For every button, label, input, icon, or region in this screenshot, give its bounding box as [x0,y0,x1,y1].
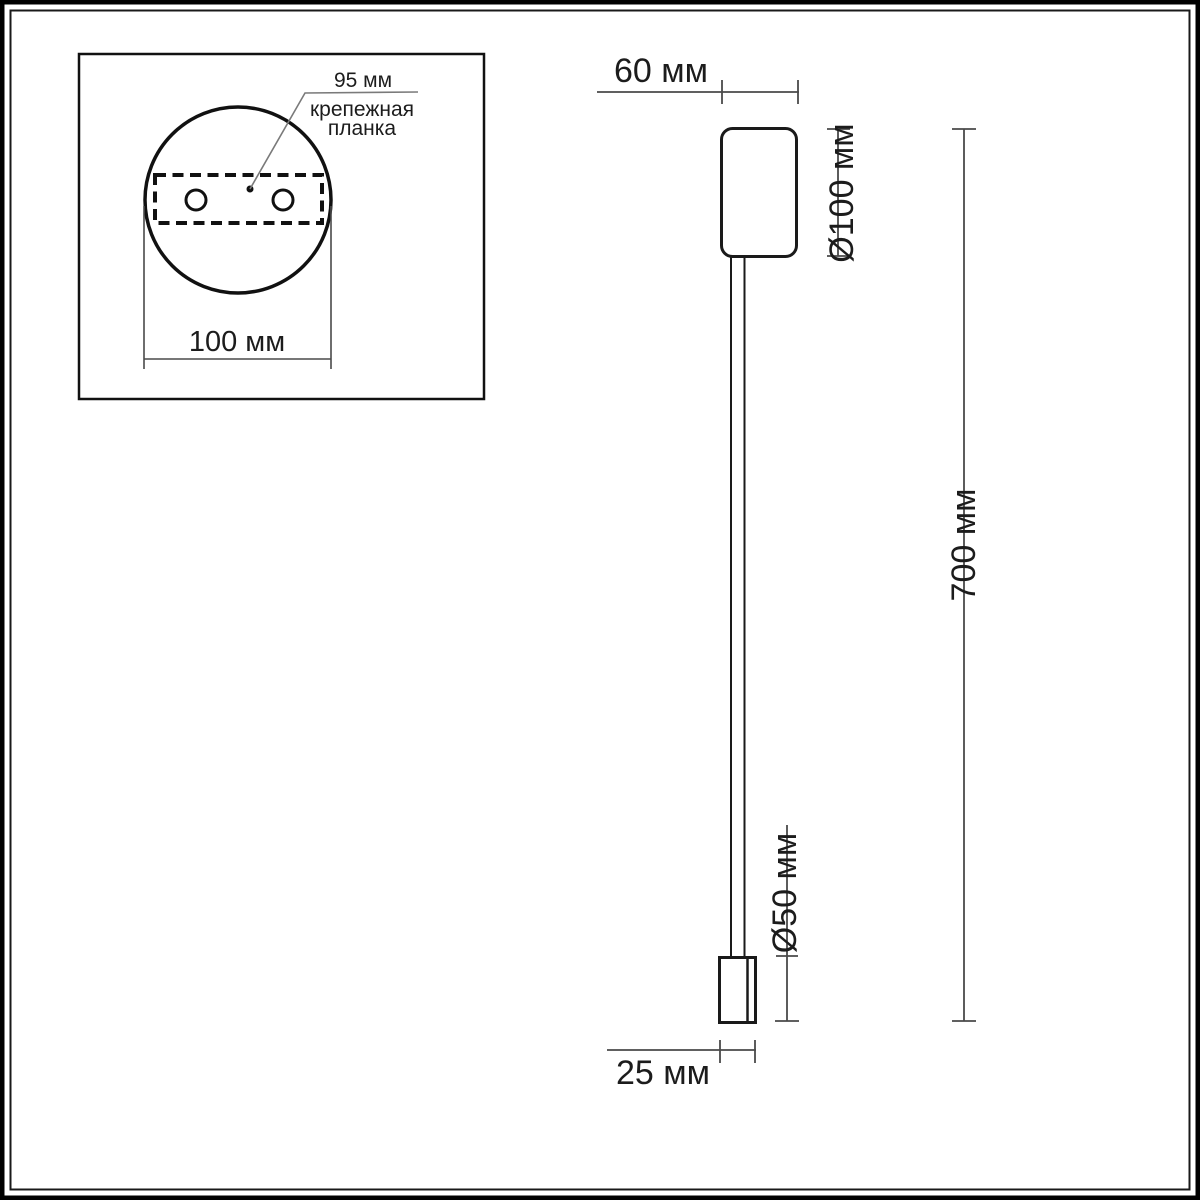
lamp-head-cylinder [720,958,756,1023]
base-circle [145,107,331,293]
frame-outer-border [2,2,1198,1198]
drawing-canvas: 95 мм крепежная планка 100 мм 60 мм Ø100… [0,0,1200,1200]
dim-label-d50: Ø50 мм [766,833,804,953]
mounting-plate-dashed-outline [155,175,322,223]
dim-label-25: 25 мм [616,1054,710,1092]
frame-inner-border [11,11,1190,1190]
dim-label-d100: Ø100 мм [823,123,861,262]
lamp-base-body [722,129,797,257]
dimension-drawing: 95 мм крепежная планка 100 мм 60 мм Ø100… [0,0,1200,1200]
dim-label-60: 60 мм [614,52,708,90]
plate-span-label: 95 мм [334,69,392,92]
plate-name-line2: планка [328,117,397,140]
dim-label-700: 700 мм [945,489,983,602]
mounting-hole-left [186,190,206,210]
inset-dim-label-100: 100 мм [189,326,285,358]
mounting-hole-right [273,190,293,210]
